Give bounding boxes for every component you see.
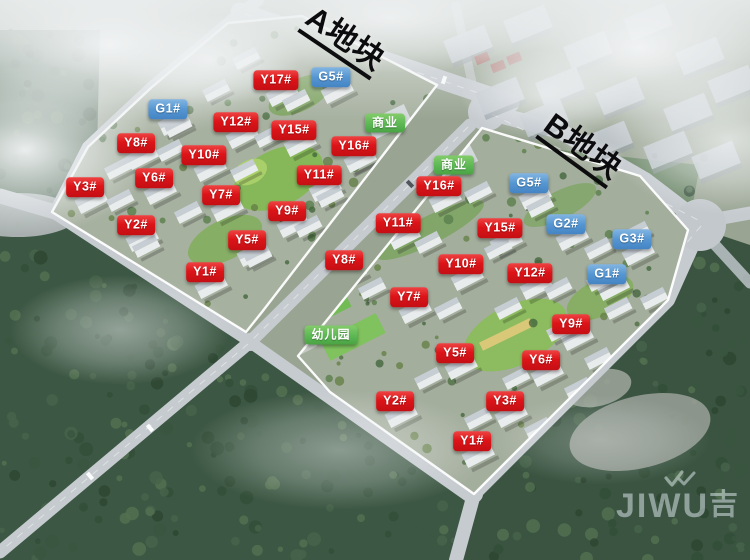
building-label-A-Y15: Y15# — [271, 120, 316, 140]
building-label-A-Y2: Y2# — [117, 215, 155, 235]
building-label-A-Y10: Y10# — [181, 145, 226, 165]
building-label-A-Y8: Y8# — [117, 133, 155, 153]
building-label-A-Y6: Y6# — [135, 168, 173, 188]
building-label-A-Y12: Y12# — [213, 112, 258, 132]
building-label-B-Y1: Y1# — [453, 431, 491, 451]
building-label-A-Y17: Y17# — [253, 70, 298, 90]
building-label-A-G1: G1# — [148, 99, 187, 119]
building-label-A-G5: G5# — [311, 67, 350, 87]
building-label-B-Y16: Y16# — [416, 176, 461, 196]
building-label-B-G1: G1# — [587, 264, 626, 284]
building-label-B-Y11: Y11# — [376, 213, 421, 233]
watermark-brand: JIWU — [616, 487, 709, 525]
building-label-B-Y8: Y8# — [325, 250, 363, 270]
building-label-B-商业: 商业 — [434, 156, 474, 175]
aerial-photo-rendering — [0, 0, 750, 560]
building-label-B-Y10: Y10# — [438, 254, 483, 274]
building-label-A-Y1: Y1# — [186, 262, 224, 282]
building-label-A-Y9: Y9# — [268, 201, 306, 221]
building-label-B-G2: G2# — [546, 214, 585, 234]
watermark-cjk: 吉 — [709, 489, 738, 521]
building-label-A-Y16: Y16# — [331, 136, 376, 156]
aerial-masterplan-image: A地块 B地块 G1#Y17#G5#Y12#Y15#商业Y16#Y8#Y10#Y… — [0, 0, 750, 560]
building-label-B-幼儿园: 幼儿园 — [304, 326, 357, 345]
building-label-B-G3: G3# — [612, 229, 651, 249]
building-label-A-Y3: Y3# — [66, 177, 104, 197]
building-label-B-Y15: Y15# — [477, 218, 522, 238]
building-label-B-G5: G5# — [509, 173, 548, 193]
building-label-B-Y9: Y9# — [552, 314, 590, 334]
building-label-B-Y6: Y6# — [522, 350, 560, 370]
building-label-B-Y12: Y12# — [507, 263, 552, 283]
building-label-B-Y2: Y2# — [376, 391, 414, 411]
building-label-A-Y11: Y11# — [297, 165, 342, 185]
building-label-A-商业: 商业 — [365, 114, 405, 133]
jiwu-watermark: JIWU吉 — [616, 489, 738, 523]
building-label-B-Y3: Y3# — [486, 391, 524, 411]
building-label-B-Y7: Y7# — [390, 287, 428, 307]
building-label-B-Y5: Y5# — [436, 343, 474, 363]
building-label-A-Y7: Y7# — [202, 185, 240, 205]
building-label-A-Y5: Y5# — [228, 230, 266, 250]
